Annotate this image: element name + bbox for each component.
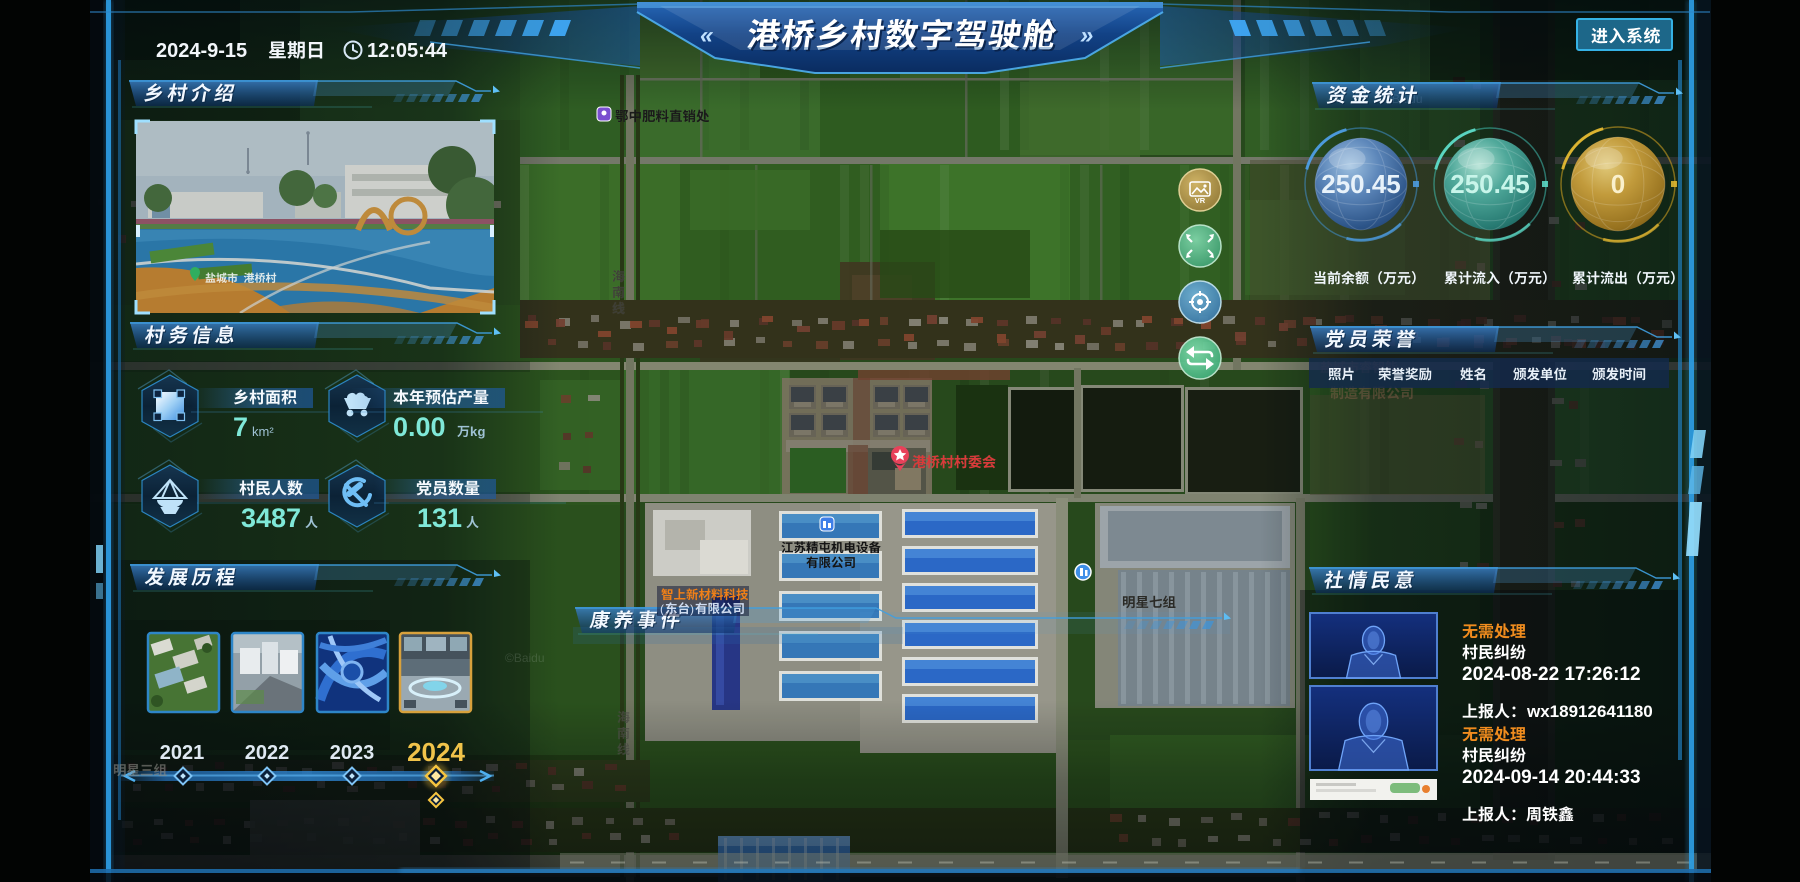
svg-text:2023: 2023	[330, 742, 375, 764]
svg-text:VR: VR	[1195, 196, 1206, 205]
svg-text:131: 131	[417, 503, 462, 533]
svg-text:2024-09-14 20:44:33: 2024-09-14 20:44:33	[1462, 767, 1641, 788]
svg-text:2024-08-22 17:26:12: 2024-08-22 17:26:12	[1462, 664, 1641, 685]
svg-text:«: «	[700, 22, 713, 49]
svg-text:250.45: 250.45	[1450, 169, 1530, 199]
svg-text:0: 0	[1611, 169, 1625, 199]
svg-text:g: g	[478, 424, 486, 439]
svg-text:»: »	[1080, 22, 1093, 49]
svg-text:250.45: 250.45	[1321, 169, 1401, 199]
svg-text:2024-9-15: 2024-9-15	[156, 40, 247, 62]
svg-text:3487: 3487	[241, 503, 301, 533]
svg-text:km²: km²	[252, 424, 274, 439]
svg-text:(: (	[660, 602, 664, 616]
svg-text:wx18912641180: wx18912641180	[1526, 702, 1653, 721]
svg-text:7: 7	[233, 412, 248, 442]
svg-text:©Baidu: ©Baidu	[505, 651, 545, 665]
svg-text:0.00: 0.00	[393, 412, 446, 442]
svg-text:2021: 2021	[160, 742, 205, 764]
svg-text:2022: 2022	[245, 742, 290, 764]
svg-text:): )	[690, 602, 694, 616]
svg-text:2024: 2024	[407, 737, 465, 767]
svg-text:12:05:44: 12:05:44	[367, 40, 448, 62]
